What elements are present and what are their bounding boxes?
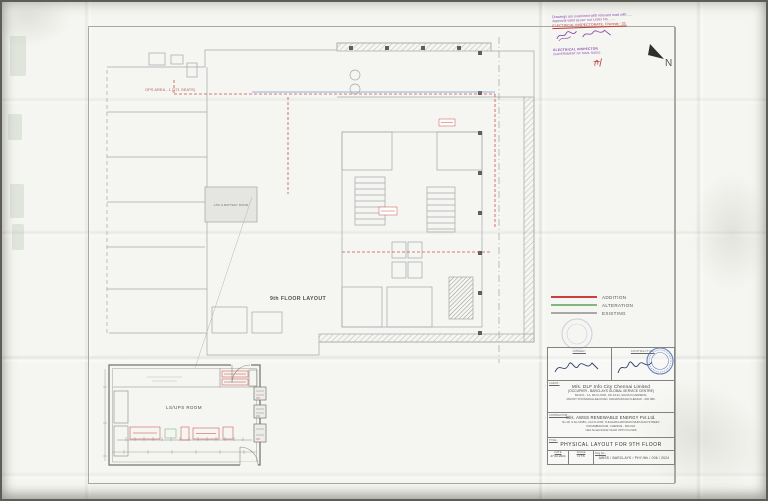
signature-row: OWNER: CONTRACTOR: (548, 348, 674, 381)
dwg-no-value: AWSS / BARCLAYS / PHY-9th / 006 / 2024 (594, 451, 674, 460)
title-block: OWNER: CONTRACTOR: CLIENT:- M/s (547, 347, 675, 465)
inspector-signature (552, 27, 622, 42)
legend-item-alteration: ALTERATION (551, 301, 663, 309)
company-seal (644, 348, 674, 377)
contractor-license: CEA No.EA/13442 VALID UPTO 04.2026 (548, 428, 674, 432)
legend-line-existing (551, 312, 597, 313)
scale-value: N.T.S (569, 454, 593, 458)
red-check-mark (591, 57, 605, 69)
owner-signature-cell: OWNER: (548, 348, 612, 380)
date-cell: DATE 27.02.2024 (548, 451, 569, 464)
north-label: N (665, 58, 672, 69)
drawing-title-row: TITLE:- PHYSICAL LAYOUT FOR 9TH FLOOR (548, 438, 674, 451)
legend-line-addition (551, 296, 597, 297)
legend-line-alteration (551, 304, 597, 305)
legend: ADDITION ALTERATION EXISTING (551, 293, 663, 317)
leader-line (195, 197, 252, 368)
client-address-2: MOUNT POONAMALLEE ROAD, MANAPAKKAM CHENN… (548, 397, 674, 401)
ups-room-drawing: LS/UPS ROOM (102, 357, 272, 475)
margin-smudge (12, 224, 24, 250)
ops-area-label: OPS AREA - 1 (271 SEATS) (145, 87, 196, 92)
scanned-drawing-sheet: Drawings are examined with relevant read… (0, 0, 768, 501)
legend-label: EXISTING (602, 311, 626, 316)
client-block: CLIENT:- M/s. DLF Info City Chennai Limi… (548, 381, 674, 413)
scale-cell: SCALE N.T.S (569, 451, 594, 464)
ups-room-label: LS/UPS ROOM (166, 405, 202, 410)
margin-smudge (10, 184, 24, 218)
ahu-room-label: AHU & BATTERY ROOM (214, 203, 249, 207)
margin-smudge (8, 114, 22, 140)
dwg-no-label: Dwg.No:- (595, 452, 606, 455)
addition-route (174, 80, 495, 252)
contractor-block: CONTRACTOR:- M/s. AWSS RENEWABLE ENERGY … (548, 413, 674, 438)
owner-header: OWNER: (548, 348, 611, 353)
north-arrow-icon: N (640, 38, 682, 72)
alteration-panel (165, 429, 176, 438)
margin-smudge (10, 36, 26, 76)
title-tag: TITLE:- (549, 439, 558, 442)
drawing-meta-row: DATE 27.02.2024 SCALE N.T.S Dwg.No:- AWS… (548, 451, 674, 464)
owner-signature (552, 357, 604, 377)
legend-item-addition: ADDITION (551, 293, 663, 301)
floor-plan-drawing: AHU & BATTERY ROOM OPS AREA - 1 (271 SEA… (87, 37, 557, 369)
floor-layout-label: 9th FLOOR LAYOUT (270, 296, 326, 302)
addition-equipment (379, 119, 455, 215)
dwg-no-cell: Dwg.No:- AWSS / BARCLAYS / PHY-9th / 006… (594, 451, 674, 464)
electrical-panels (254, 387, 266, 442)
contractor-signature-cell: CONTRACTOR: (612, 348, 675, 380)
client-tag: CLIENT:- (549, 382, 560, 385)
paper-shade (692, 172, 768, 292)
contractor-tag: CONTRACTOR:- (549, 414, 569, 417)
drawing-title: PHYSICAL LAYOUT FOR 9TH FLOOR (548, 438, 674, 448)
date-value: 27.02.2024 (548, 454, 568, 458)
legend-label: ADDITION (602, 295, 626, 300)
legend-label: ALTERATION (602, 303, 633, 308)
